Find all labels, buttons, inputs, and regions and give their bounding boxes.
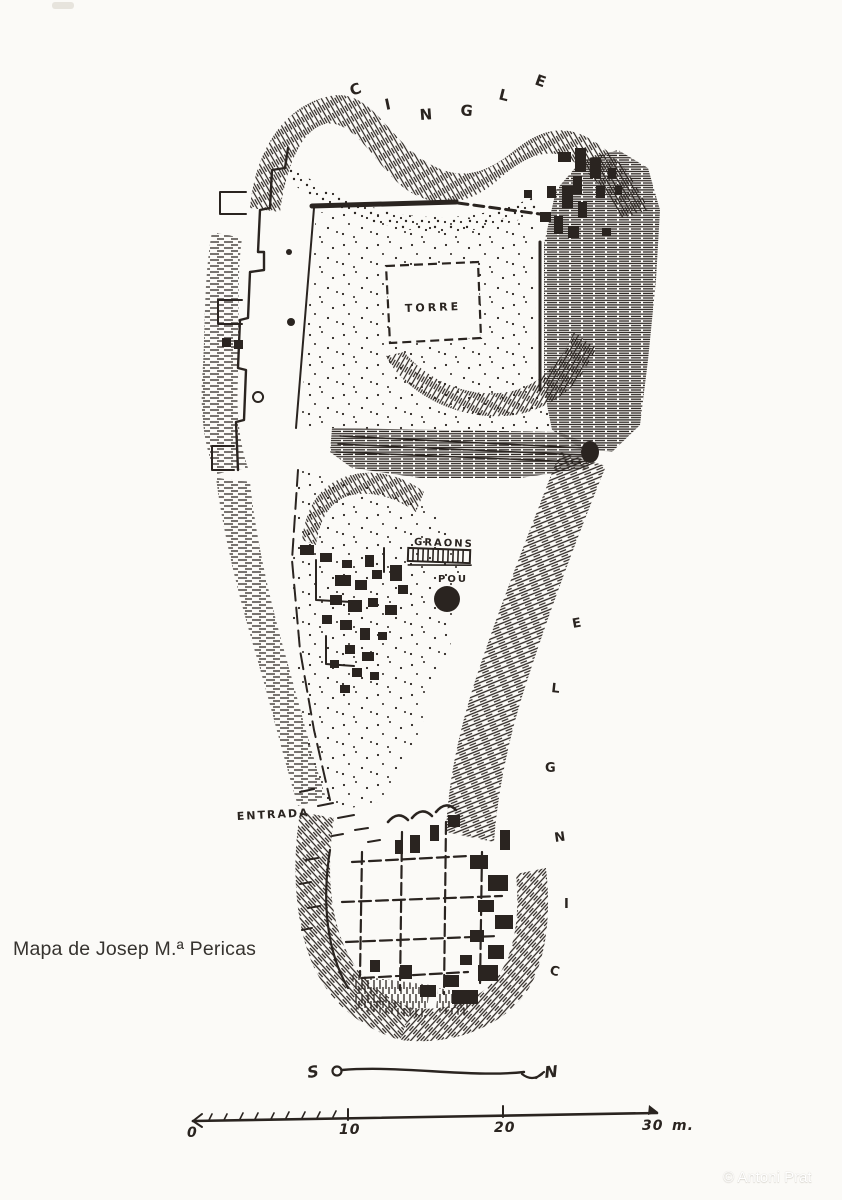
copyright-credit: © Antoni Prat bbox=[723, 1169, 812, 1186]
cingle-top-letter: G bbox=[460, 101, 475, 120]
scale-bar-line bbox=[193, 1113, 657, 1121]
scale-unit-label: m. bbox=[672, 1118, 694, 1134]
map-caption: Mapa de Josep M.ª Pericas bbox=[13, 938, 256, 961]
site-plan-drawing: C I N G L E E L G N I C TORRE GRAONS POU… bbox=[0, 0, 842, 1200]
scale-tick-label: 10 bbox=[339, 1122, 360, 1138]
cingle-top-letter: C bbox=[347, 79, 364, 100]
middle-courtyard-stipple bbox=[292, 470, 462, 812]
scale-bar: 0 10 20 30 m. bbox=[187, 1105, 694, 1141]
cingle-right-letter: C bbox=[548, 963, 561, 980]
cingle-right-letter: L bbox=[551, 681, 561, 697]
compass-north-label: N bbox=[543, 1062, 559, 1082]
scanned-map-page: C I N G L E E L G N I C TORRE GRAONS POU… bbox=[0, 0, 842, 1200]
north-arrow-icon bbox=[333, 1067, 545, 1079]
scale-tick-label: 20 bbox=[494, 1120, 515, 1136]
cingle-top-letter: L bbox=[497, 85, 512, 105]
cingle-right-letter: E bbox=[571, 616, 582, 632]
cingle-right-letter: N bbox=[553, 830, 566, 846]
tower-label: TORRE bbox=[405, 300, 462, 315]
cingle-top-letter: E bbox=[533, 71, 550, 92]
cliff-left-upper-band bbox=[202, 232, 248, 474]
graons-label: GRAONS bbox=[414, 537, 474, 550]
pou-label: POU bbox=[438, 574, 468, 585]
well-icon bbox=[434, 586, 460, 612]
lower-ruin-top-arches bbox=[388, 805, 456, 822]
scale-tick-label: 30 bbox=[642, 1118, 663, 1134]
compass-south-label: S bbox=[306, 1062, 320, 1082]
terrace-knot bbox=[581, 441, 599, 463]
cingle-top-letter: N bbox=[419, 105, 434, 124]
cingle-right-letter: G bbox=[545, 761, 556, 776]
small-circle-feature bbox=[253, 392, 263, 402]
compass: S N bbox=[306, 1062, 559, 1082]
cliff-right-diagonal-band bbox=[446, 452, 606, 842]
cingle-top-letter: I bbox=[383, 95, 393, 114]
scale-tick-label: 0 bbox=[187, 1125, 198, 1141]
cingle-right-letter: I bbox=[564, 897, 569, 912]
cingle-right-label: E L G N I C bbox=[545, 616, 582, 981]
